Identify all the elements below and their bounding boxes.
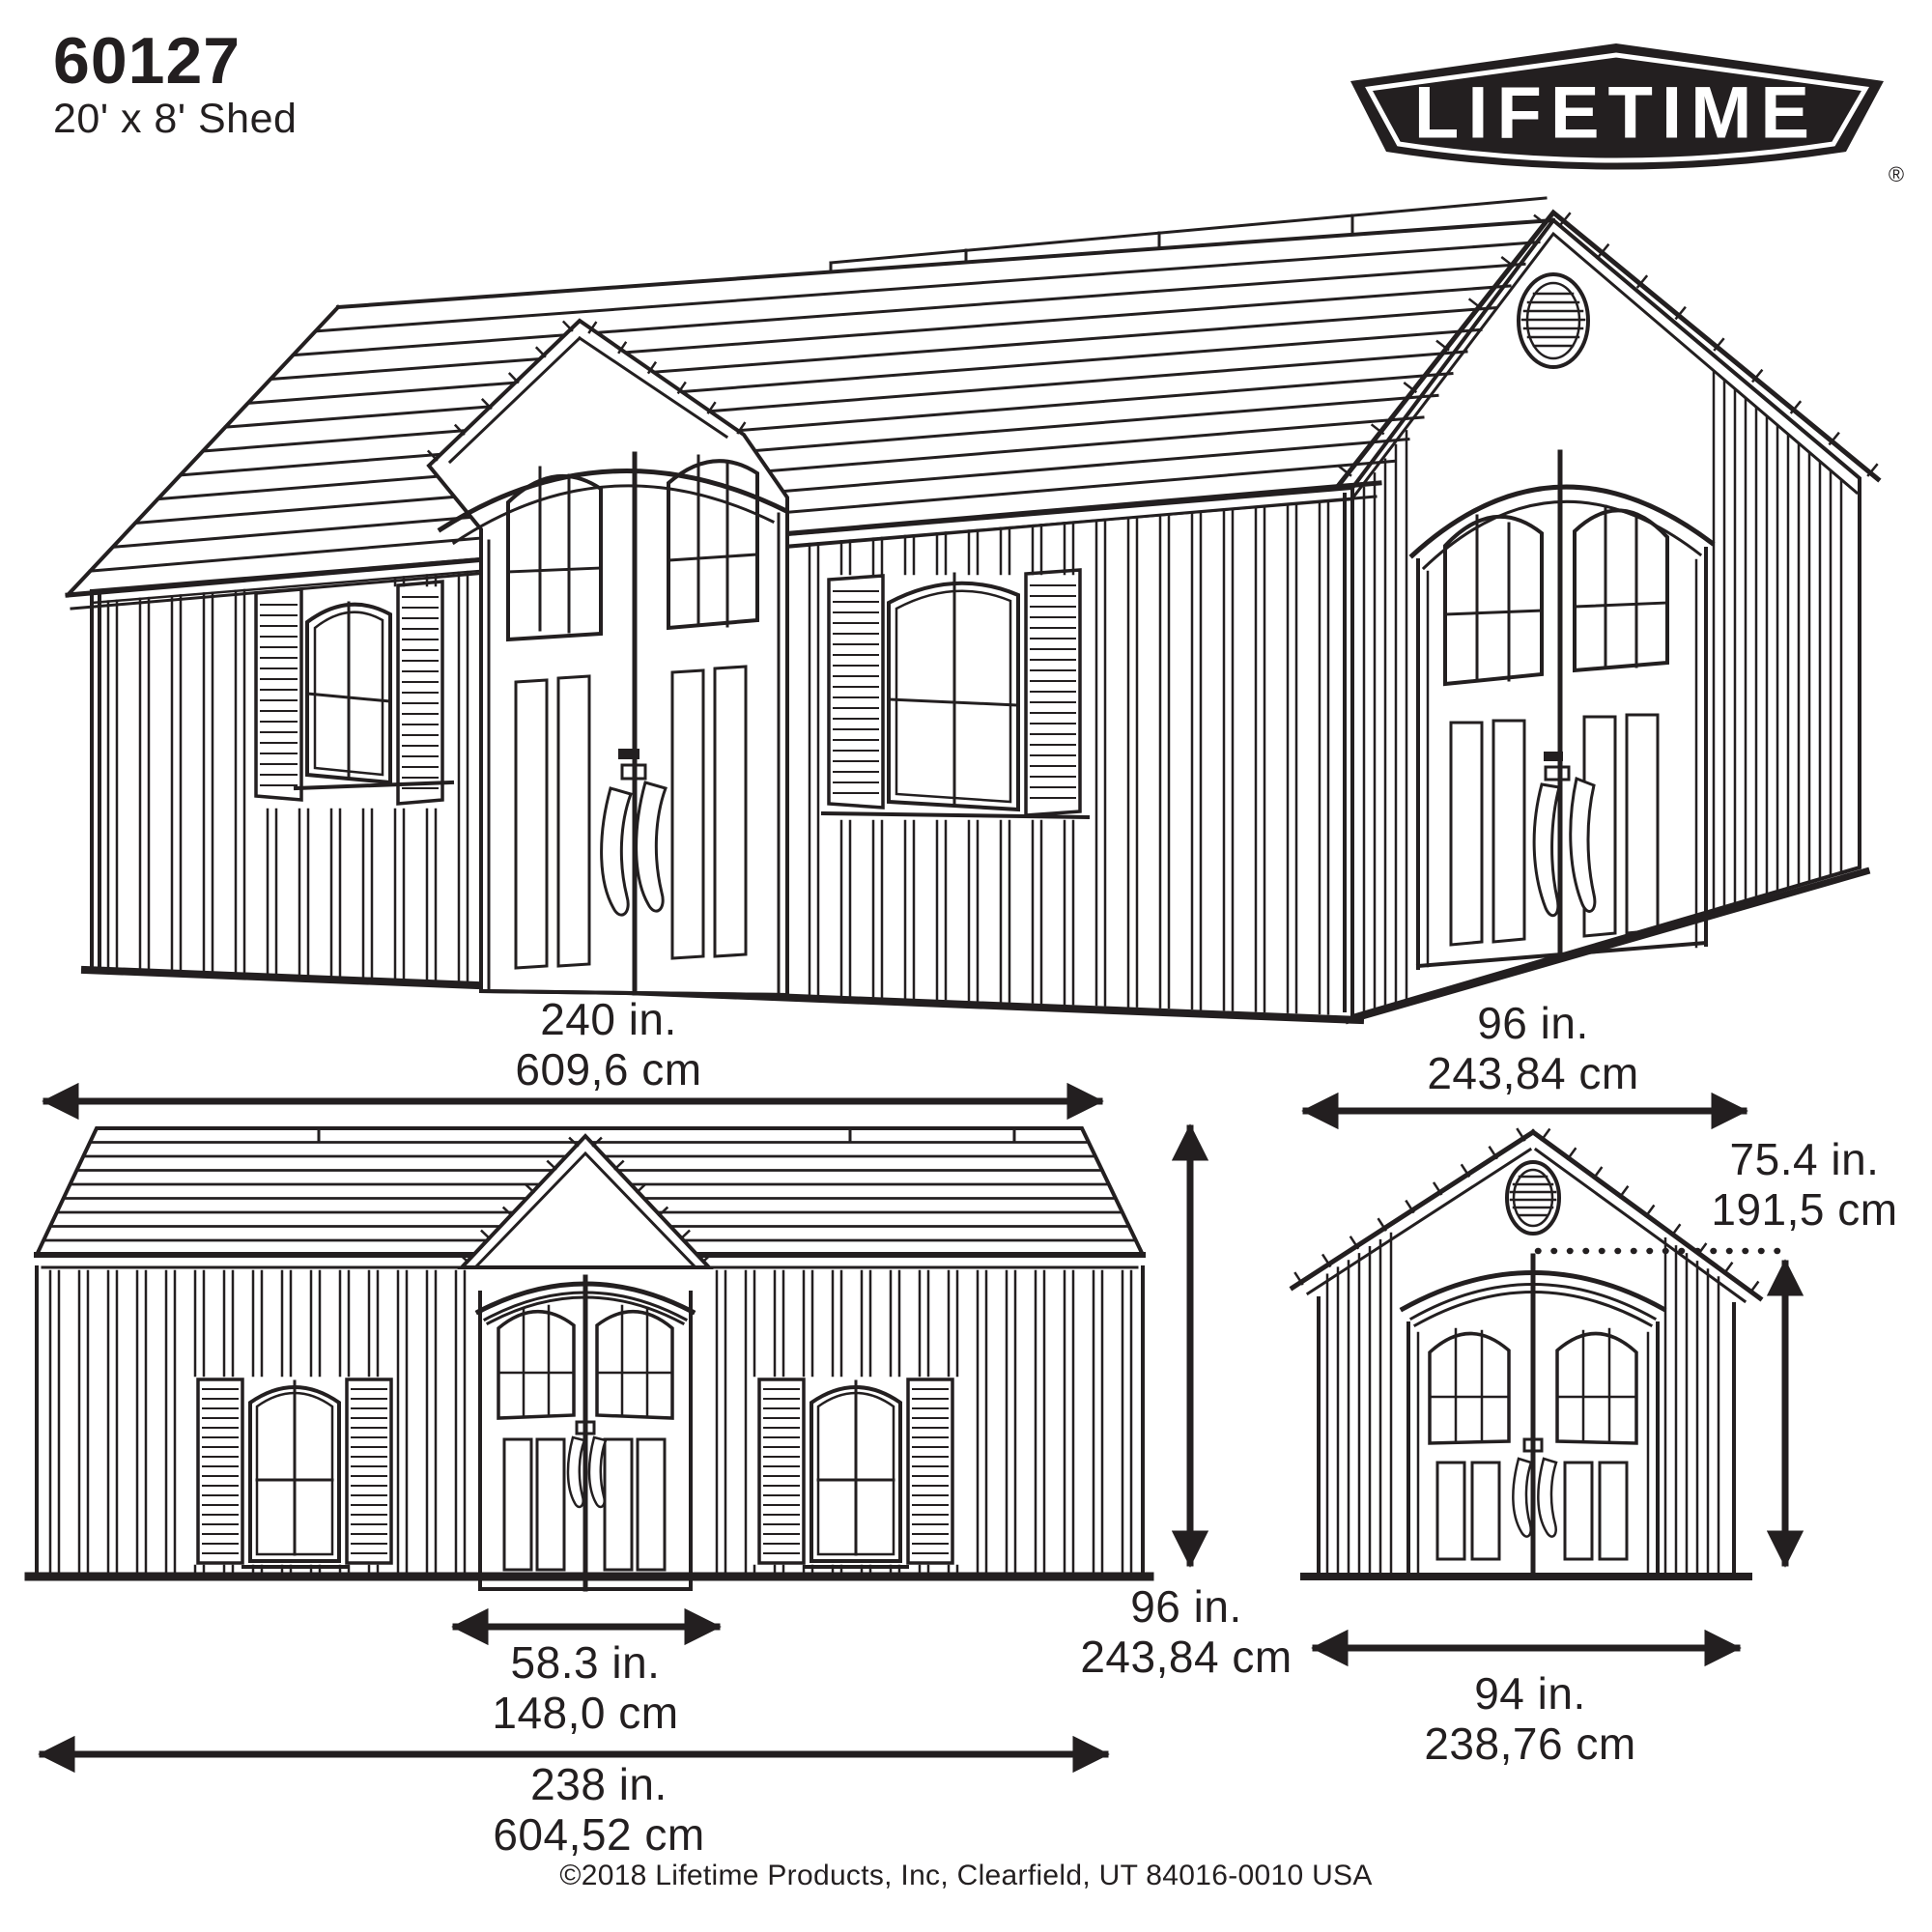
title-block: 60127 20' x 8' Shed bbox=[53, 27, 297, 143]
window-right-perspective bbox=[823, 570, 1088, 817]
door-handle bbox=[1571, 779, 1595, 911]
registered-trademark-symbol: ® bbox=[1889, 162, 1904, 187]
front-elevation-view bbox=[29, 1128, 1150, 1589]
dormer-doors-front bbox=[460, 1136, 711, 1589]
door-handle bbox=[1538, 1459, 1556, 1537]
perspective-view bbox=[68, 198, 1878, 1020]
shed-size-subtitle: 20' x 8' Shed bbox=[53, 96, 297, 143]
technical-drawing bbox=[0, 0, 1932, 1932]
dim-side-base-width: 94 in. 238,76 cm bbox=[1424, 1669, 1635, 1770]
shed-dimension-diagram-page: { "colors": { "ink": "#231f20", "backgro… bbox=[0, 0, 1932, 1932]
copyright-line: ©2018 Lifetime Products, Inc, Clearfield… bbox=[559, 1860, 1372, 1892]
door-latch-plate bbox=[618, 749, 639, 759]
window-left-front bbox=[198, 1379, 391, 1567]
dim-base-length: 238 in. 604,52 cm bbox=[493, 1760, 704, 1861]
door-handle bbox=[568, 1437, 584, 1507]
dim-door-width: 58.3 in. 148,0 cm bbox=[492, 1638, 678, 1739]
dim-peak-height: 96 in. 243,84 cm bbox=[1080, 1582, 1292, 1683]
door-latch-plate bbox=[1544, 752, 1563, 761]
dim-roof-length: 240 in. 609,6 cm bbox=[515, 995, 701, 1095]
door-handle bbox=[1534, 784, 1559, 916]
dormer-doors-perspective bbox=[429, 321, 787, 995]
side-elevation-view bbox=[1293, 1129, 1760, 1577]
window-right-front bbox=[759, 1379, 952, 1567]
door-handle bbox=[1513, 1459, 1531, 1537]
dim-eave-height: 75.4 in. 191,5 cm bbox=[1711, 1135, 1897, 1236]
model-number: 60127 bbox=[53, 27, 297, 96]
dim-side-width: 96 in. 243,84 cm bbox=[1427, 999, 1638, 1099]
door-handle bbox=[589, 1437, 606, 1507]
doors-side bbox=[1403, 1256, 1663, 1575]
lifetime-logo-text: LIFETIME bbox=[1414, 71, 1818, 156]
window-left-perspective bbox=[256, 582, 452, 804]
